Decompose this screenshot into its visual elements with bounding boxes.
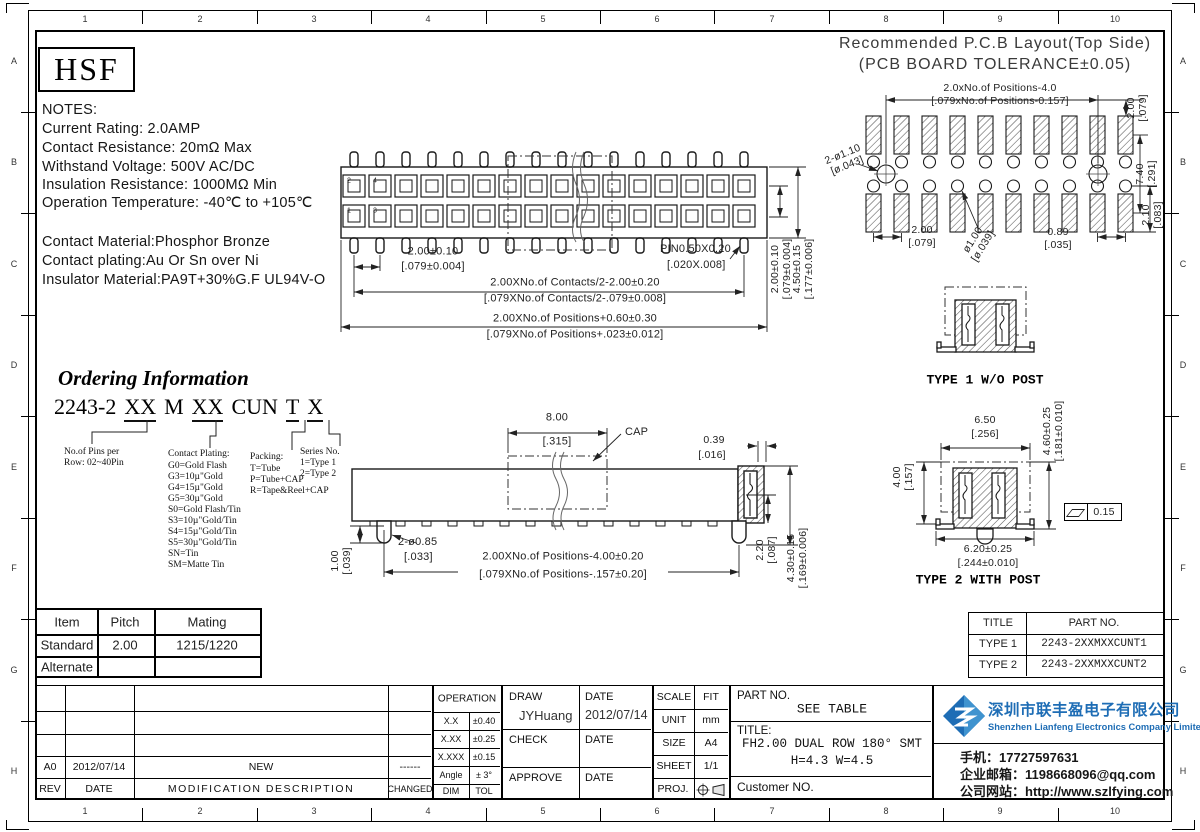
- part-block: PART NO. SEE TABLE TITLE: FH2.00 DUAL RO…: [730, 685, 933, 800]
- tol-cell: ± 3°: [476, 770, 492, 780]
- date-label: DATE: [585, 691, 614, 703]
- draw-label: DRAW: [509, 691, 542, 703]
- title-label: TITLE:: [737, 725, 772, 737]
- part-no-table: TITLE PART NO. TYPE 1 2243-2XXMXXCUNT1 T…: [968, 612, 1165, 678]
- sv-dim-gap-in: [.016]: [698, 449, 725, 461]
- sv-dim-positions-in: [.079XNo.of Positions-.157±0.20]: [479, 569, 647, 582]
- ruler-row: B: [11, 157, 17, 167]
- plating-title: Contact Plating:: [168, 449, 229, 459]
- pcb-dim-pitch-mm: 2.00: [911, 224, 932, 236]
- ruler-col: 1: [82, 806, 87, 816]
- note-line: Operation Temperature: -40℃ to +105℃: [42, 195, 312, 211]
- sv-dim-cap-in: [.315]: [543, 436, 572, 449]
- signature-block: DRAW JYHuang DATE 2012/07/14 CHECK DATE …: [502, 685, 653, 800]
- plating-item: SN=Tin: [168, 549, 198, 559]
- t2-dim-lw-in: [.244±0.010]: [958, 557, 1019, 569]
- pcb-dim-pad-mm: 0.89: [1047, 226, 1068, 238]
- draw-name: JYHuang: [519, 708, 572, 723]
- rev-value: A0: [44, 761, 57, 773]
- mating-header: Item: [54, 615, 79, 630]
- plating-item: G0=Gold Flash: [168, 461, 227, 471]
- sv-dim-h2: 4.30±0.15[.169±0.006]: [785, 528, 809, 589]
- company-website: 公司网站：http://www.szlfying.com: [960, 781, 1173, 800]
- plating-item: G5=30µ"Gold: [168, 494, 223, 504]
- ruler-col: 1: [82, 14, 87, 24]
- material-line: Insulator Material:PA9T+30%G.F UL94V-O: [42, 272, 325, 288]
- customer-label: Customer NO.: [737, 780, 814, 794]
- info-block: SCALE FIT UNIT mm SIZE A4 SHEET 1/1 PROJ…: [653, 685, 730, 800]
- mating-header: Mating: [187, 615, 226, 630]
- plating-item: S5=30µ"Gold/Tin: [168, 538, 237, 548]
- ruler-col: 3: [311, 14, 316, 24]
- ruler-row: F: [1180, 563, 1186, 573]
- ruler-col: 5: [540, 806, 545, 816]
- rev-changed: ------: [400, 761, 421, 773]
- pin-number: 2: [347, 178, 351, 185]
- ruler-row: A: [1180, 56, 1186, 66]
- pcb-dim-span-in: [.079xNo.of Positions-0.157]: [931, 95, 1069, 107]
- t2-dim-lw-mm: 6.20±0.25: [964, 543, 1012, 555]
- pcb-subtitle: (PCB BOARD TOLERANCE±0.05): [859, 56, 1131, 74]
- tolerance-table: OPERATION X.X ±0.40 X.XX ±0.25 X.XXX ±0.…: [433, 685, 502, 800]
- proj-label: PROJ.: [658, 783, 689, 795]
- mating-table: Item Pitch Mating Standard 2.00 1215/122…: [35, 608, 262, 678]
- note-line: Withstand Voltage: 500V AC/DC: [42, 159, 255, 175]
- ruler-col: 7: [769, 806, 774, 816]
- tol-title: OPERATION: [438, 694, 496, 705]
- ruler-row: F: [11, 563, 17, 573]
- pcb-title: Recommended P.C.B Layout(Top Side): [839, 35, 1151, 53]
- ordering-pins-line2: Row: 02~40Pin: [64, 458, 124, 468]
- t2-dim-h: 4.60±0.25[.181±0.010]: [1041, 401, 1065, 462]
- tol-cell: ±0.40: [473, 716, 495, 726]
- material-line: Contact Material:Phosphor Bronze: [42, 234, 270, 250]
- cap-label: CAP: [625, 426, 648, 439]
- pn-header: TITLE: [983, 617, 1013, 629]
- top-view-drawing: [330, 140, 830, 340]
- tv-dim-contacts-mm: 2.00XNo.of Contacts/2-2.00±0.20: [490, 277, 659, 290]
- check-label: CHECK: [509, 734, 548, 746]
- tol-cell: ±0.25: [473, 734, 495, 744]
- tv-dim-pitch-mm: 2.00±0.10: [408, 246, 459, 259]
- hsf-logo: HSF: [38, 47, 135, 92]
- rev-header: REV: [39, 783, 61, 795]
- corner-mark: [6, 3, 29, 13]
- packing-item: P=Tube+CAP: [250, 475, 304, 485]
- tv-dim-pitch-in: [.079±0.004]: [401, 261, 465, 274]
- code-gender: M: [164, 394, 184, 419]
- ruler-col: 2: [197, 14, 202, 24]
- sv-dim-post-height: 1.00[.039]: [329, 547, 353, 574]
- pn-header: PART NO.: [1069, 617, 1120, 629]
- pcb-dim-height: 7.40[.291]: [1134, 160, 1158, 187]
- sv-dim-gap-mm: 0.39: [703, 434, 724, 446]
- date-label: DATE: [585, 734, 614, 746]
- sheet-value: 1/1: [704, 760, 719, 772]
- ruler-row: B: [1180, 157, 1186, 167]
- unit-label: UNIT: [662, 714, 687, 726]
- packing-item: T=Tube: [250, 464, 280, 474]
- ordering-title: Ordering Information: [58, 366, 249, 391]
- ruler-row: C: [1180, 259, 1187, 269]
- corner-mark: [1172, 820, 1195, 830]
- tol-cell: TOL: [475, 786, 492, 796]
- rev-desc: NEW: [249, 761, 274, 773]
- draw-date: 2012/07/14: [585, 708, 648, 722]
- corner-mark: [1172, 3, 1195, 13]
- tol-cell: ±0.15: [473, 752, 495, 762]
- mating-cell: Alternate: [41, 660, 93, 675]
- pin-number: 4: [373, 178, 377, 185]
- tol-cell: DIM: [443, 786, 460, 796]
- notes-title: NOTES:: [42, 102, 97, 118]
- tv-dim-pin-in: [.020X.008]: [667, 259, 725, 272]
- ruler-col: 4: [425, 806, 430, 816]
- scale-value: FIT: [703, 691, 719, 703]
- plating-item: G3=10µ"Gold: [168, 472, 223, 482]
- sv-dim-posts: 2-ø0.85: [398, 536, 437, 549]
- ruler-row: C: [11, 259, 18, 269]
- plating-item: S3=10µ"Gold/Tin: [168, 516, 237, 526]
- ruler-col: 10: [1110, 806, 1120, 816]
- code-series-name: CUN: [231, 394, 277, 419]
- ruler-col: 7: [769, 14, 774, 24]
- size-label: SIZE: [662, 737, 685, 749]
- date-label: DATE: [585, 772, 614, 784]
- ruler-col: 8: [883, 14, 888, 24]
- tol-cell: X.XX: [441, 734, 462, 744]
- material-line: Contact plating:Au Or Sn over Ni: [42, 253, 259, 269]
- t2-dim-b: 4.00[.157]: [891, 463, 915, 490]
- sv-dim-h1: 2.20[.087]: [754, 536, 778, 563]
- size-value: A4: [705, 737, 718, 749]
- approve-label: APPROVE: [509, 772, 562, 784]
- rev-header: MODIFICATION DESCRIPTION: [168, 783, 354, 795]
- plating-item: S0=Gold Flash/Tin: [168, 505, 241, 515]
- note-line: Current Rating: 2.0AMP: [42, 121, 200, 137]
- part-no-value: SEE TABLE: [797, 702, 867, 717]
- ruler-row: H: [1180, 766, 1187, 776]
- t2-dim-w-in: [.256]: [971, 428, 998, 440]
- tol-cell: X.XXX: [438, 752, 465, 762]
- t2-dim-w-mm: 6.50: [974, 414, 995, 426]
- note-line: Insulation Resistance: 1000MΩ Min: [42, 177, 277, 193]
- ruler-col: 4: [425, 14, 430, 24]
- ruler-col: 9: [997, 806, 1002, 816]
- pin-number: 1: [347, 208, 351, 215]
- rev-header: CHANGED: [387, 784, 432, 794]
- type2-label: TYPE 2 WITH POST: [916, 573, 1041, 588]
- ruler-row: E: [1180, 462, 1186, 472]
- ruler-col: 6: [654, 14, 659, 24]
- title-line1: FH2.00 DUAL ROW 180° SMT: [742, 737, 922, 751]
- revision-table: A0 2012/07/14 NEW ------ REV DATE MODIFI…: [35, 685, 433, 800]
- tv-dim-pin: PIN0.50X0.20: [660, 243, 731, 256]
- ruler-col: 2: [197, 806, 202, 816]
- note-line: Contact Resistance: 20mΩ Max: [42, 140, 252, 156]
- ruler-row: E: [11, 462, 17, 472]
- mating-header: Pitch: [111, 615, 140, 630]
- packing-item: R=Tape&Reel+CAP: [250, 486, 329, 496]
- mating-cell: 2.00: [112, 638, 137, 653]
- pcb-dim-span-mm: 2.0xNo.of Positions-4.0: [943, 82, 1056, 94]
- plating-item: G4=15µ"Gold: [168, 483, 223, 493]
- flatness-value: 0.15: [1093, 506, 1114, 518]
- tv-dim-rowpitch: 2.00±0.10[.079±0.004]: [769, 239, 793, 300]
- tol-cell: Angle: [439, 770, 462, 780]
- ruler-row: G: [1179, 665, 1186, 675]
- ruler-col: 3: [311, 806, 316, 816]
- drawing-sheet: 1 2 3 4 5 6 7 8 9 10 1 2 3 4 5 6 7 8 9 1…: [0, 0, 1200, 832]
- ruler-row: D: [1180, 360, 1187, 370]
- sheet-label: SHEET: [656, 760, 691, 772]
- pin-number: 3: [373, 208, 377, 215]
- part-no-label: PART NO.: [737, 690, 790, 702]
- plating-item: S4=15µ"Gold/Tin: [168, 527, 237, 537]
- pn-cell: TYPE 1: [979, 638, 1017, 650]
- ruler-col: 9: [997, 14, 1002, 24]
- code-base: 2243-2: [54, 394, 116, 419]
- pcb-dim-vpitch: 2.00[.079]: [1125, 94, 1149, 121]
- mating-cell: Standard: [41, 638, 94, 653]
- scale-label: SCALE: [657, 691, 691, 703]
- pn-cell: TYPE 2: [979, 659, 1017, 671]
- flatness-callout: 0.15: [1064, 503, 1122, 521]
- pcb-dim-pitch-in: [.079]: [908, 237, 935, 249]
- ruler-col: 8: [883, 806, 888, 816]
- ruler-col: 10: [1110, 14, 1120, 24]
- ruler-col: 6: [654, 806, 659, 816]
- tv-dim-height: 4.50±0.15[.177±0.006]: [791, 239, 815, 300]
- ruler-col: 5: [540, 14, 545, 24]
- ruler-row: G: [10, 665, 17, 675]
- pcb-dim-pad-in: [.035]: [1044, 239, 1071, 251]
- ruler-row: H: [11, 766, 18, 776]
- tv-dim-positions-in: [.079XNo.of Positions+.023±0.012]: [487, 329, 664, 342]
- packing-title: Packing:: [250, 452, 283, 462]
- ruler-row: A: [11, 56, 17, 66]
- company-logo-icon: [942, 694, 986, 738]
- ordering-code: 2243-2XXMXXCUNTX: [54, 394, 323, 420]
- tv-dim-positions-mm: 2.00XNo.of Positions+0.60±0.30: [493, 313, 657, 326]
- rev-header: DATE: [85, 783, 112, 795]
- tol-cell: X.X: [444, 716, 459, 726]
- pn-cell: 2243-2XXMXXCUNT1: [1041, 638, 1147, 650]
- corner-mark: [6, 820, 29, 830]
- type1-label: TYPE 1 W/O POST: [926, 373, 1043, 388]
- sv-dim-posts-in: [.033]: [404, 551, 433, 564]
- flatness-icon: [1066, 509, 1085, 517]
- rev-date: 2012/07/14: [73, 761, 126, 773]
- sv-dim-positions-mm: 2.00XNo.of Positions-4.00±0.20: [482, 551, 643, 564]
- unit-value: mm: [702, 714, 720, 726]
- pcb-dim-row: 2.10[.083]: [1140, 201, 1164, 228]
- mating-cell: 1215/1220: [176, 638, 237, 653]
- company-name-en: Shenzhen Lianfeng Electronics Company Li…: [988, 722, 1200, 732]
- sv-dim-cap-mm: 8.00: [546, 412, 568, 425]
- plating-item: SM=Matte Tin: [168, 560, 224, 570]
- company-name-cn: 深圳市联丰盈电子有限公司: [988, 698, 1180, 720]
- ruler-row: D: [11, 360, 18, 370]
- ordering-pins-line1: No.of Pins per: [64, 447, 119, 457]
- tv-dim-contacts-in: [.079XNo.of Contacts/2-.079±0.008]: [484, 293, 666, 306]
- company-block: 深圳市联丰盈电子有限公司 Shenzhen Lianfeng Electroni…: [933, 685, 1165, 800]
- projection-symbol-icon: [696, 782, 726, 798]
- title-line2: H=4.3 W=4.5: [791, 754, 874, 768]
- pn-cell: 2243-2XXMXXCUNT2: [1041, 659, 1147, 671]
